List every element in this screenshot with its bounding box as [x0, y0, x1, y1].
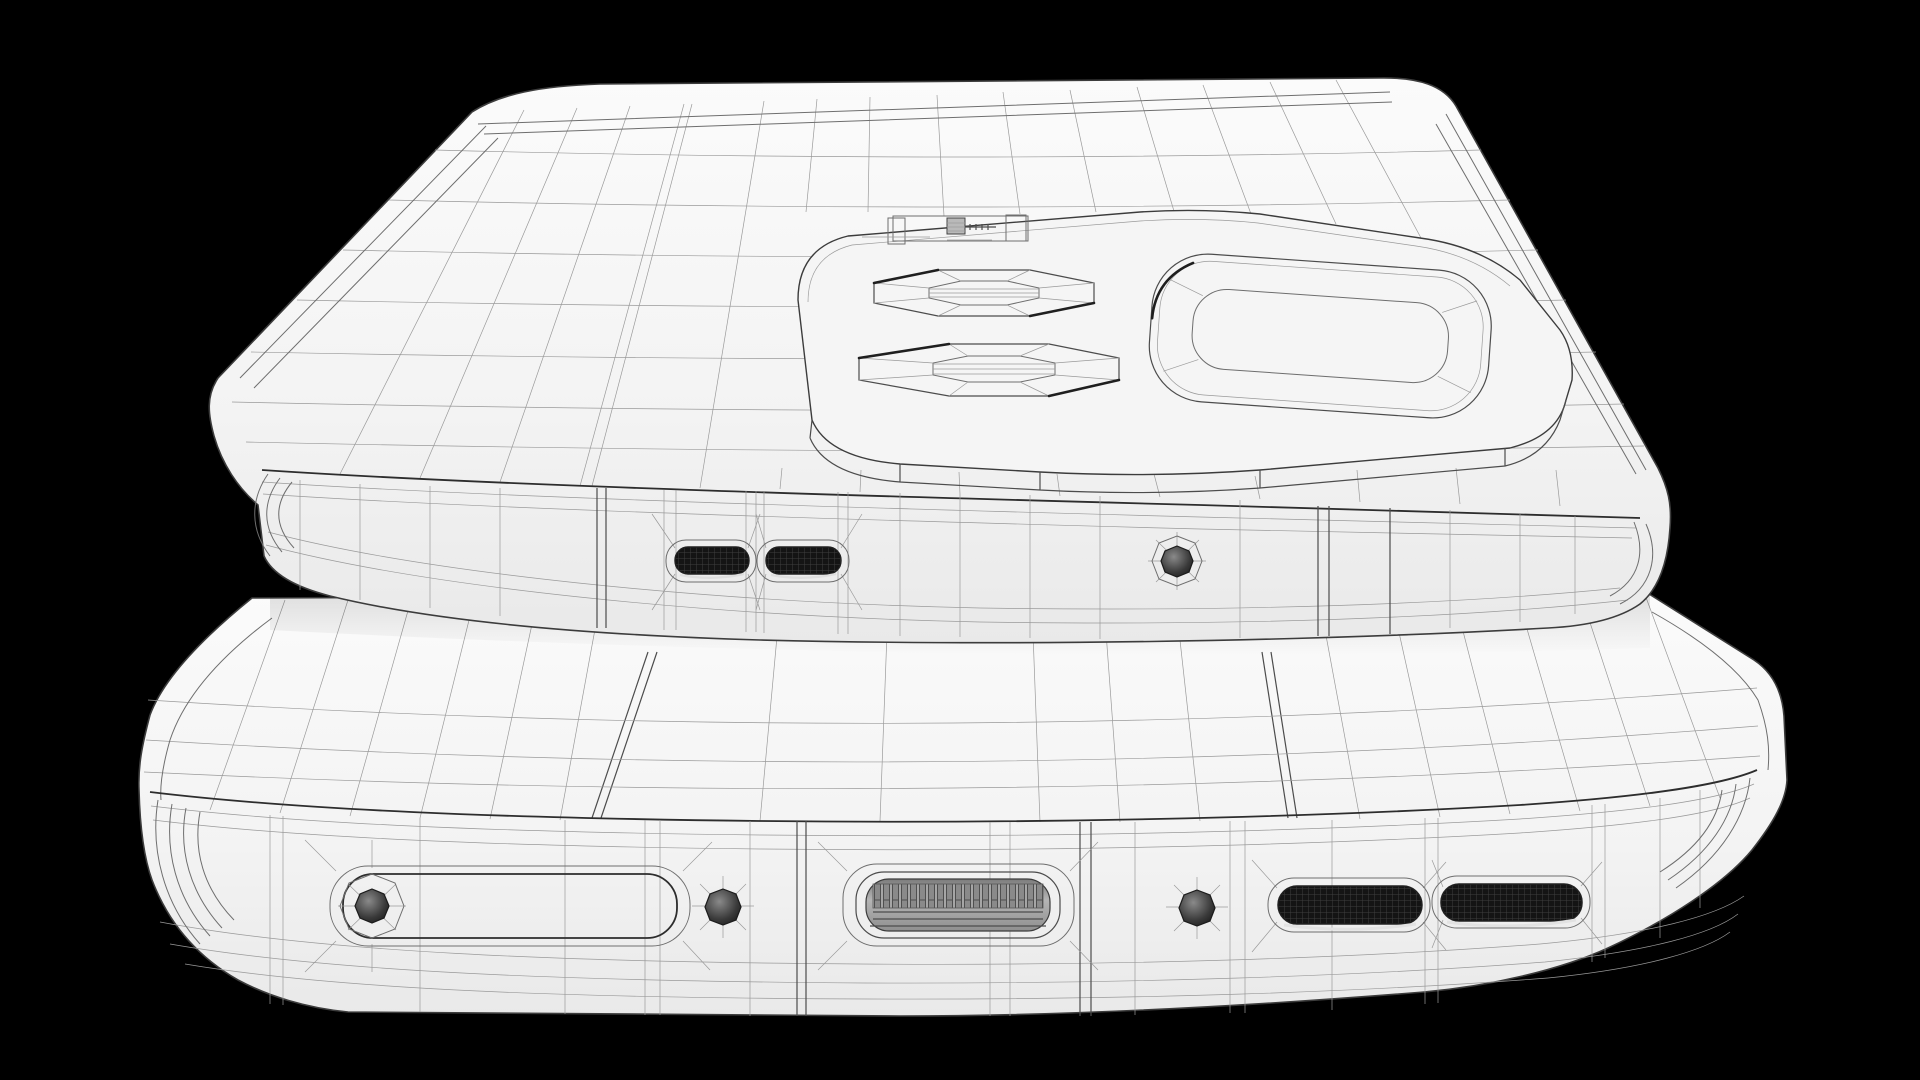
wireframe-render-canvas [0, 0, 1920, 1080]
bottom-phone [139, 592, 1787, 1016]
top-phone [209, 78, 1670, 643]
usb-c-pins [873, 884, 1043, 908]
render-viewport [0, 0, 1920, 1080]
camera-module [798, 210, 1572, 492]
camera-plate [798, 210, 1572, 474]
